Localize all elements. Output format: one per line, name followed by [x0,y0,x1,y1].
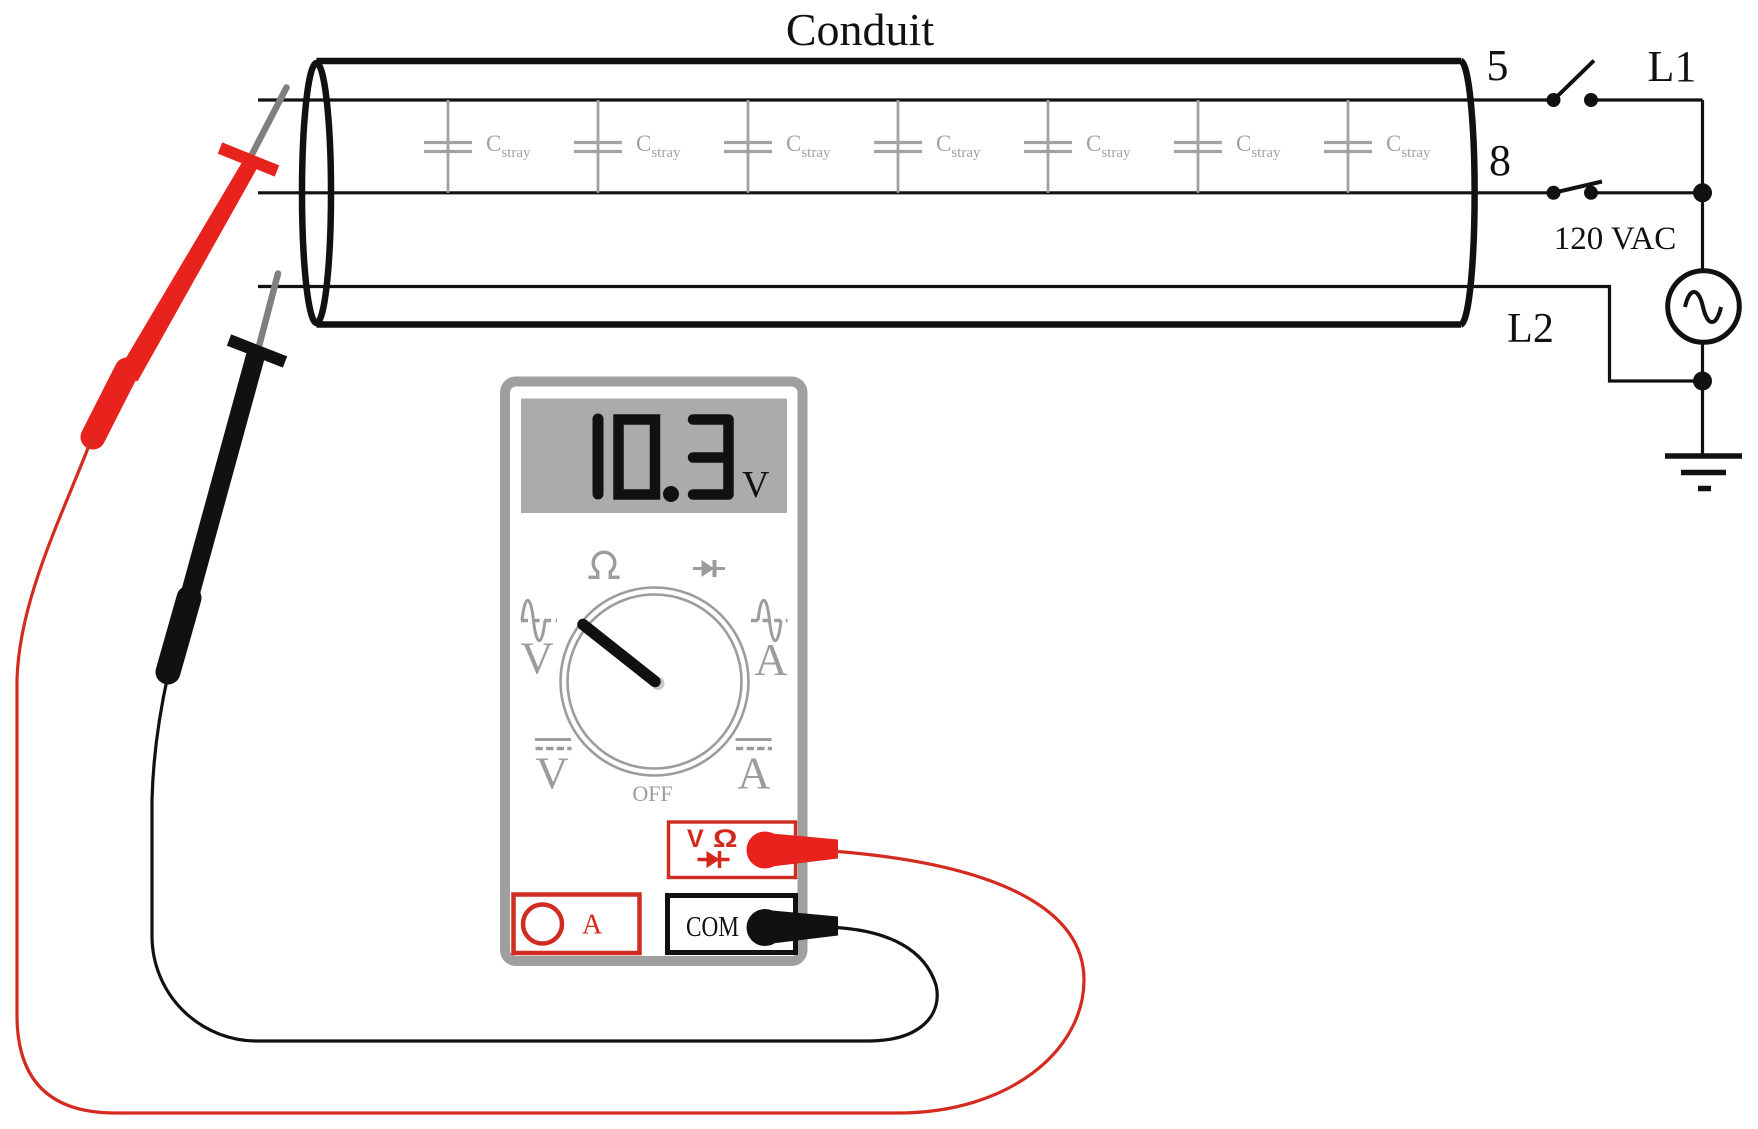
svg-text:OFF: OFF [632,781,672,806]
svg-text:L1: L1 [1648,42,1697,91]
svg-text:V: V [687,825,704,853]
svg-text:L2: L2 [1507,306,1554,352]
svg-text:Ω: Ω [713,825,738,853]
svg-text:COM: COM [686,911,739,943]
svg-text:A: A [737,748,770,799]
svg-text:V: V [742,464,770,506]
svg-text:120 VAC: 120 VAC [1554,221,1677,257]
svg-text:5: 5 [1487,41,1509,90]
svg-text:Conduit: Conduit [786,4,934,55]
svg-text:V: V [535,748,568,799]
svg-text:V: V [520,633,553,684]
svg-text:A: A [754,634,787,685]
svg-text:A: A [582,910,603,941]
svg-text:8: 8 [1489,136,1511,185]
